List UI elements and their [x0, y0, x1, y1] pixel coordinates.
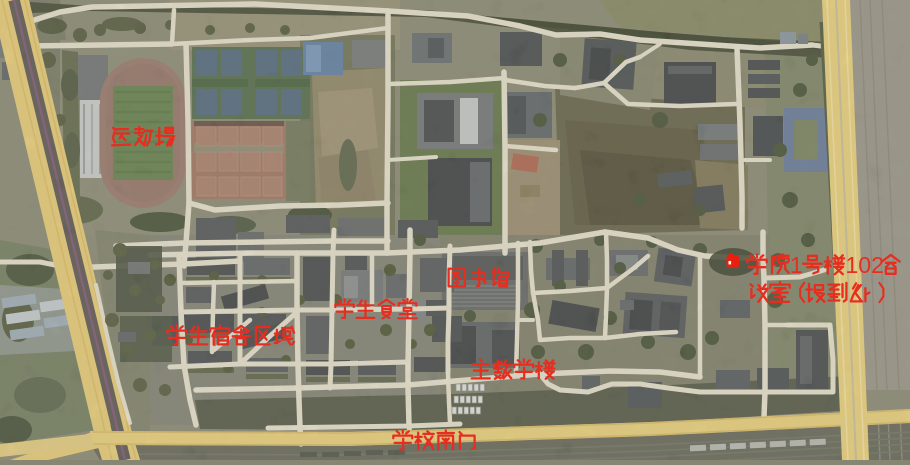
svg-text:102: 102: [845, 252, 884, 278]
svg-text:1: 1: [790, 252, 803, 278]
